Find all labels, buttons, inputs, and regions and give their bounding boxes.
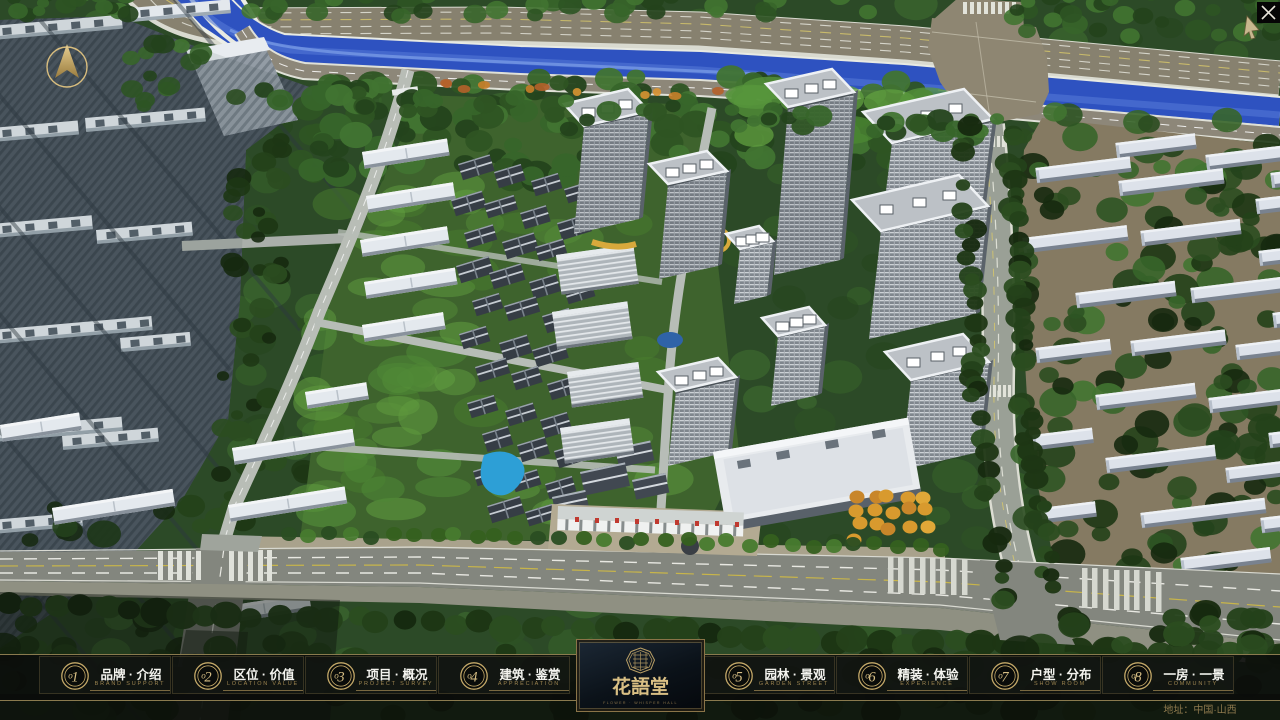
svg-text:o: o bbox=[201, 671, 206, 681]
svg-text:o: o bbox=[68, 671, 73, 681]
svg-text:花語堂: 花語堂 bbox=[612, 675, 669, 698]
svg-text:o: o bbox=[865, 671, 870, 681]
svg-text:o: o bbox=[1131, 671, 1136, 681]
svg-text:o: o bbox=[467, 671, 472, 681]
svg-text:FLOWER · WHISPER HALL: FLOWER · WHISPER HALL bbox=[603, 701, 678, 705]
svg-text:o: o bbox=[732, 671, 737, 681]
svg-text:o: o bbox=[334, 671, 339, 681]
svg-text:o: o bbox=[998, 671, 1003, 681]
